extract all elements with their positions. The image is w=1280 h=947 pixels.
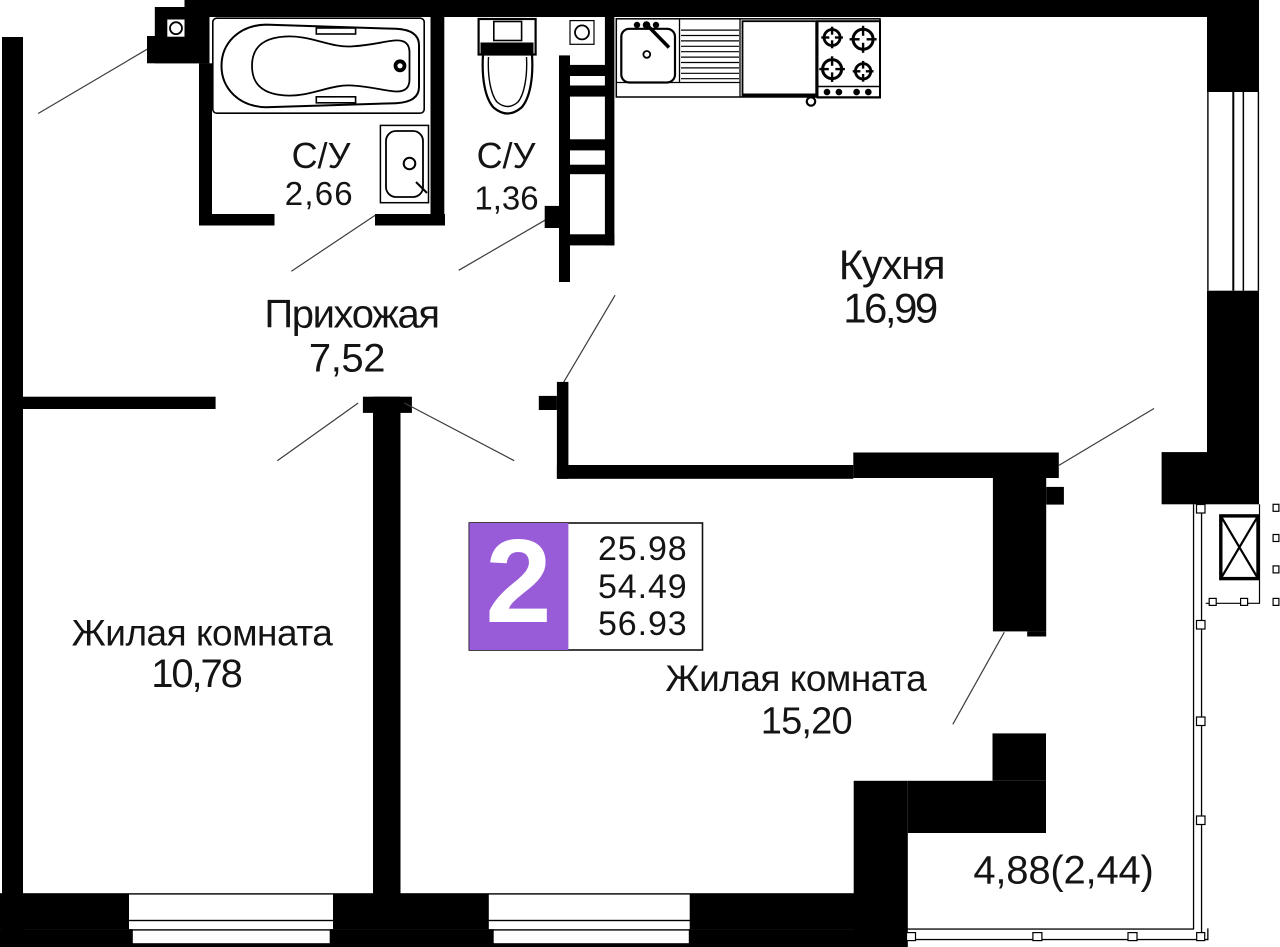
svg-text:4,88(2,44): 4,88(2,44) [973,849,1153,893]
svg-text:54.49: 54.49 [598,568,688,606]
svg-text:Жилая комната: Жилая комната [665,658,927,699]
svg-text:1,36: 1,36 [474,180,538,217]
svg-text:2,66: 2,66 [285,175,354,212]
svg-text:25.98: 25.98 [598,530,688,568]
svg-text:С/У: С/У [292,135,352,176]
svg-text:56.93: 56.93 [598,605,688,643]
svg-text:Жилая комната: Жилая комната [72,613,334,654]
svg-text:15,20: 15,20 [761,701,852,743]
svg-text:7,52: 7,52 [309,337,385,381]
svg-text:Кухня: Кухня [839,241,944,288]
svg-text:Прихожая: Прихожая [264,293,438,337]
svg-text:10,78: 10,78 [151,652,241,696]
svg-text:2: 2 [485,515,551,648]
svg-text:16,99: 16,99 [843,285,937,332]
svg-text:С/У: С/У [477,135,537,176]
